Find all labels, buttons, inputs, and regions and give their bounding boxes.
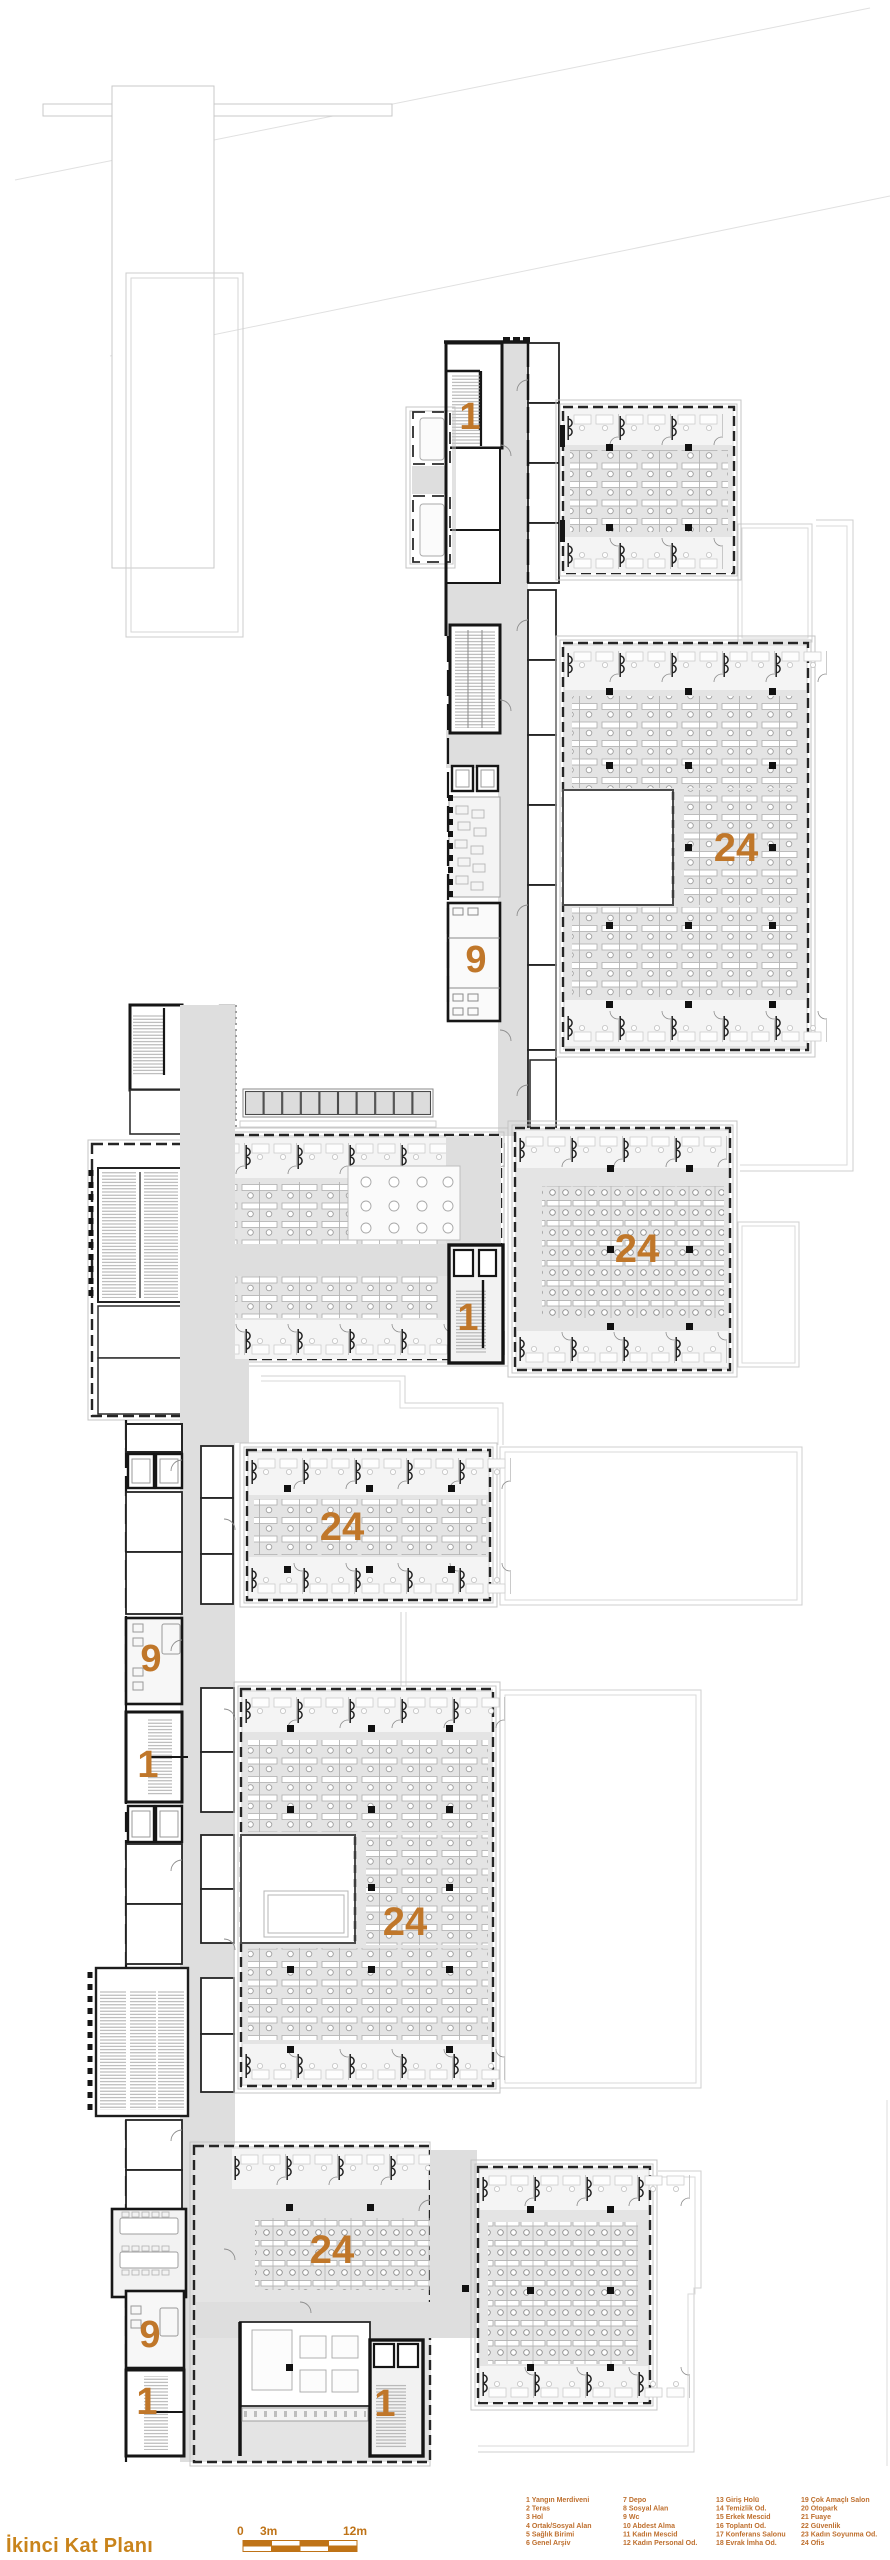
svg-text:3m: 3m bbox=[260, 2524, 277, 2538]
svg-text:24: 24 bbox=[310, 2228, 355, 2272]
svg-text:24: 24 bbox=[615, 1227, 660, 1271]
svg-text:24: 24 bbox=[383, 1900, 428, 1944]
svg-text:12m: 12m bbox=[343, 2524, 367, 2538]
svg-text:23 Kadın Soyunma Od.: 23 Kadın Soyunma Od. bbox=[801, 2531, 877, 2538]
svg-text:1: 1 bbox=[136, 2381, 157, 2423]
svg-text:1: 1 bbox=[137, 1744, 158, 1786]
svg-text:1: 1 bbox=[374, 2383, 395, 2425]
svg-text:9: 9 bbox=[139, 2314, 160, 2356]
svg-text:24: 24 bbox=[714, 826, 759, 870]
svg-text:2 Teras: 2 Teras bbox=[526, 2506, 550, 2513]
svg-text:1: 1 bbox=[457, 1297, 478, 1339]
svg-text:6 Genel Arşiv: 6 Genel Arşiv bbox=[526, 2540, 571, 2547]
svg-text:8 Sosyal Alan: 8 Sosyal Alan bbox=[623, 2506, 668, 2513]
svg-text:0: 0 bbox=[237, 2524, 244, 2538]
svg-text:20 Otopark: 20 Otopark bbox=[801, 2506, 838, 2513]
svg-text:12 Kadın Personal Od.: 12 Kadın Personal Od. bbox=[623, 2540, 697, 2547]
svg-text:1 Yangın Merdiveni: 1 Yangın Merdiveni bbox=[526, 2497, 589, 2504]
svg-text:1: 1 bbox=[459, 396, 480, 438]
svg-text:13 Giriş Holü: 13 Giriş Holü bbox=[716, 2497, 759, 2504]
svg-text:22 Güvenlik: 22 Güvenlik bbox=[801, 2523, 840, 2530]
svg-text:5 Sağlık Birimi: 5 Sağlık Birimi bbox=[526, 2531, 574, 2538]
svg-text:14 Temizlik Od.: 14 Temizlik Od. bbox=[716, 2506, 766, 2513]
svg-text:16 Toplantı Od.: 16 Toplantı Od. bbox=[716, 2523, 766, 2530]
svg-text:24: 24 bbox=[320, 1505, 365, 1549]
svg-text:3 Hol: 3 Hol bbox=[526, 2514, 543, 2521]
svg-text:24 Ofis: 24 Ofis bbox=[801, 2540, 824, 2547]
svg-text:18 Evrak İmha Od.: 18 Evrak İmha Od. bbox=[716, 2539, 777, 2547]
svg-text:9: 9 bbox=[465, 939, 486, 981]
svg-text:İkinci Kat Planı: İkinci Kat Planı bbox=[6, 2534, 153, 2557]
svg-text:19 Çok Amaçlı Salon: 19 Çok Amaçlı Salon bbox=[801, 2497, 870, 2504]
svg-text:11 Kadın Mescid: 11 Kadın Mescid bbox=[623, 2531, 677, 2538]
svg-text:9 Wc: 9 Wc bbox=[623, 2514, 639, 2521]
svg-text:15 Erkek Mescid: 15 Erkek Mescid bbox=[716, 2514, 770, 2521]
svg-text:17 Konferans Salonu: 17 Konferans Salonu bbox=[716, 2531, 786, 2538]
svg-text:9: 9 bbox=[140, 1638, 161, 1680]
svg-text:10 Abdest Alma: 10 Abdest Alma bbox=[623, 2523, 675, 2530]
svg-text:21 Fuaye: 21 Fuaye bbox=[801, 2514, 831, 2521]
svg-text:7 Depo: 7 Depo bbox=[623, 2497, 646, 2504]
svg-text:4 Ortak/Sosyal Alan: 4 Ortak/Sosyal Alan bbox=[526, 2523, 592, 2530]
